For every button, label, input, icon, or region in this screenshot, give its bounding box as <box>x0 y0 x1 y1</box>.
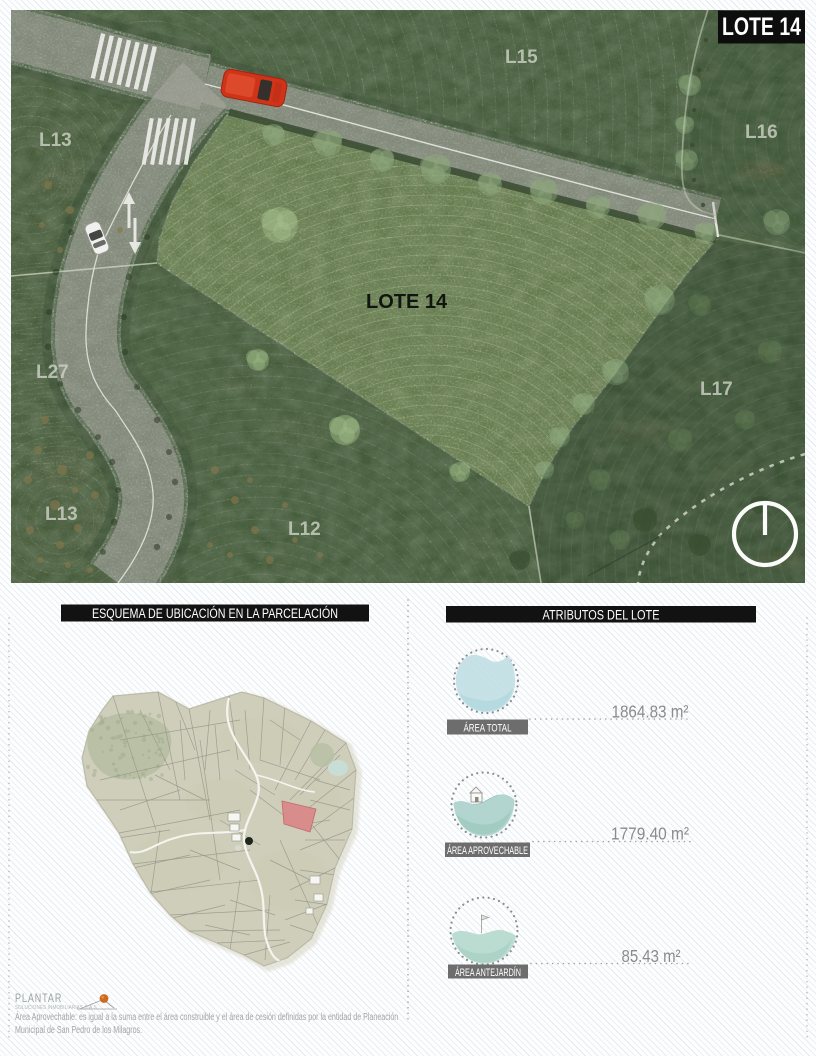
svg-text:ÁREA APROVECHABLE: ÁREA APROVECHABLE <box>447 844 528 857</box>
svg-text:LOTE 14: LOTE 14 <box>722 13 801 41</box>
svg-text:1864.83 m²: 1864.83 m² <box>612 702 689 722</box>
svg-text:85.43 m²: 85.43 m² <box>622 946 681 966</box>
svg-text:ESQUEMA DE UBICACIÓN EN LA PAR: ESQUEMA DE UBICACIÓN EN LA PARCELACIÓN <box>92 606 338 621</box>
svg-text:ÁREA ANTEJARDÍN: ÁREA ANTEJARDÍN <box>455 966 521 979</box>
svg-text:ATRIBUTOS DEL LOTE: ATRIBUTOS DEL LOTE <box>543 608 660 623</box>
svg-text:1779.40 m²: 1779.40 m² <box>611 824 689 844</box>
svg-text:ÁREA TOTAL: ÁREA TOTAL <box>464 722 512 735</box>
